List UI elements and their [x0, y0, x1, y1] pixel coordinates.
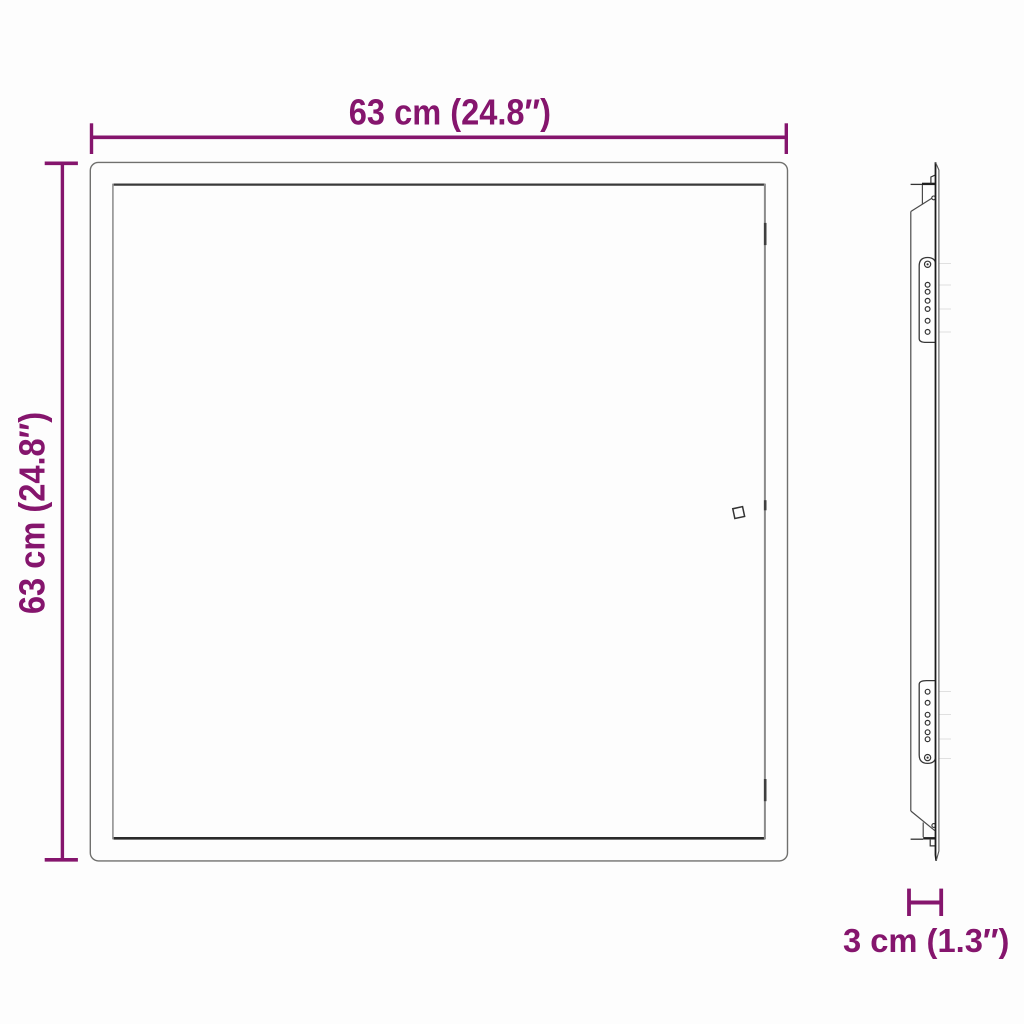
svg-text:3 cm (1.3″): 3 cm (1.3″) — [843, 923, 1009, 960]
svg-text:63 cm (24.8″): 63 cm (24.8″) — [13, 412, 53, 614]
svg-text:63 cm (24.8″): 63 cm (24.8″) — [349, 93, 551, 133]
